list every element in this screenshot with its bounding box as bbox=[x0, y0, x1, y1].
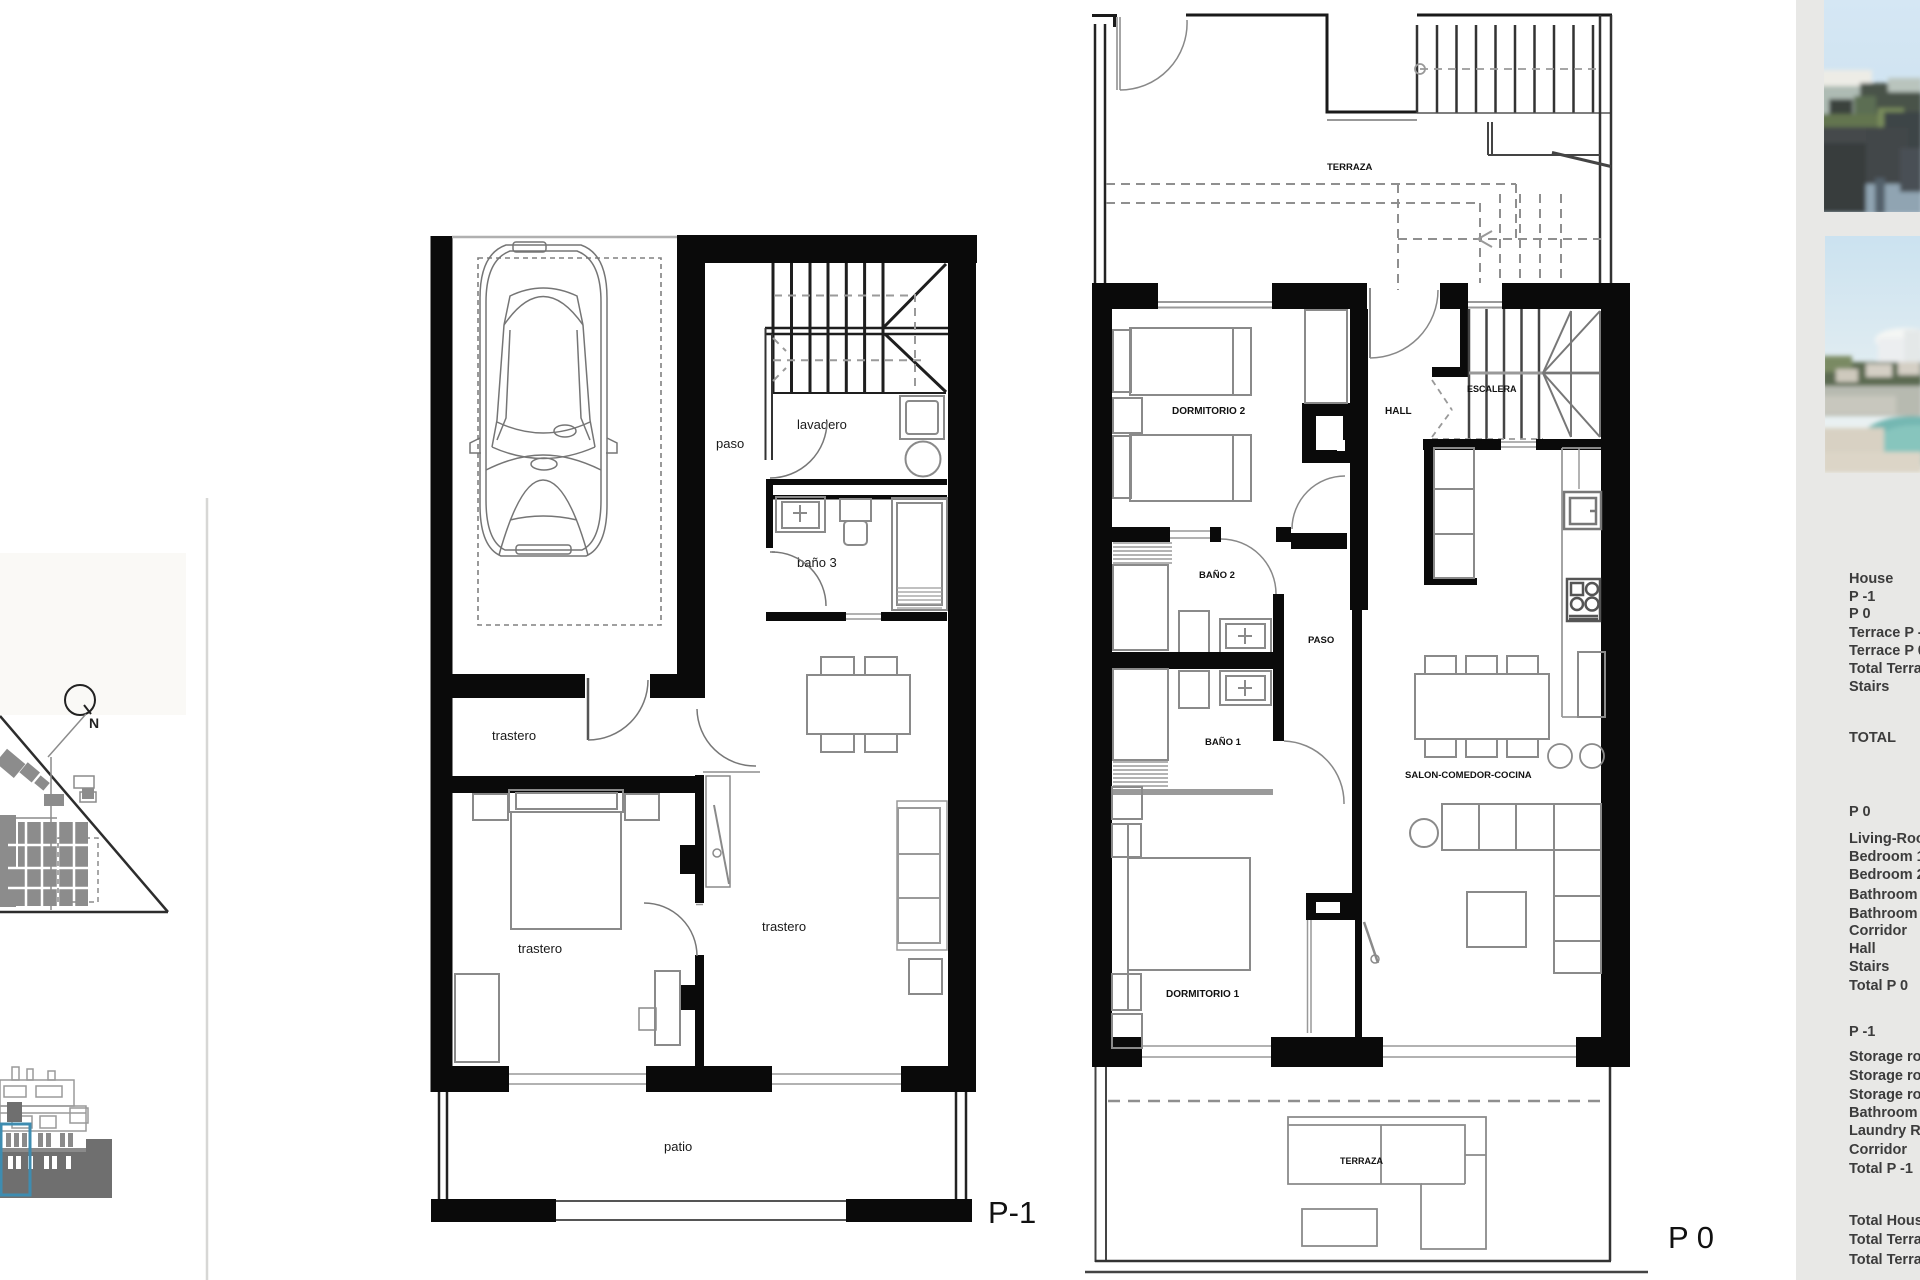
svg-text:Bathroom 1: Bathroom 1 bbox=[1849, 887, 1920, 903]
svg-text:Bedroom 2: Bedroom 2 bbox=[1849, 867, 1920, 883]
svg-text:Bathroom 3: Bathroom 3 bbox=[1849, 1105, 1920, 1121]
svg-text:DORMITORIO 1: DORMITORIO 1 bbox=[1166, 989, 1240, 1000]
svg-text:trastero: trastero bbox=[518, 941, 562, 956]
svg-text:House: House bbox=[1849, 571, 1893, 587]
svg-text:TOTAL: TOTAL bbox=[1849, 730, 1896, 746]
svg-text:SALON-COMEDOR-COCINA: SALON-COMEDOR-COCINA bbox=[1405, 770, 1532, 781]
svg-text:Total Terrace: Total Terrace bbox=[1849, 661, 1920, 677]
svg-text:BAÑO 2: BAÑO 2 bbox=[1199, 570, 1235, 581]
svg-text:Corridor: Corridor bbox=[1849, 923, 1907, 939]
svg-text:Terrace P -1: Terrace P -1 bbox=[1849, 625, 1920, 641]
svg-text:TERRAZA: TERRAZA bbox=[1340, 1156, 1383, 1166]
svg-text:lavadero: lavadero bbox=[797, 417, 847, 432]
svg-text:paso: paso bbox=[716, 436, 744, 451]
svg-text:ESCALERA: ESCALERA bbox=[1467, 384, 1517, 394]
svg-text:P-1: P-1 bbox=[988, 1195, 1036, 1230]
svg-text:Hall: Hall bbox=[1849, 941, 1876, 957]
svg-text:P 0: P 0 bbox=[1849, 606, 1871, 622]
svg-text:Total P -1: Total P -1 bbox=[1849, 1161, 1913, 1177]
svg-text:Storage room 3: Storage room 3 bbox=[1849, 1087, 1920, 1103]
svg-text:P -1: P -1 bbox=[1849, 589, 1875, 605]
svg-text:Storage room 2: Storage room 2 bbox=[1849, 1068, 1920, 1084]
svg-text:Corridor: Corridor bbox=[1849, 1142, 1907, 1158]
svg-text:P 0: P 0 bbox=[1668, 1220, 1714, 1255]
svg-text:Stairs: Stairs bbox=[1849, 679, 1889, 695]
svg-text:Stairs: Stairs bbox=[1849, 959, 1889, 975]
svg-text:N: N bbox=[89, 715, 99, 731]
svg-text:Living-Room-Kit: Living-Room-Kit bbox=[1849, 831, 1920, 847]
svg-text:P 0: P 0 bbox=[1849, 804, 1871, 820]
svg-text:P -1: P -1 bbox=[1849, 1024, 1875, 1040]
svg-text:PASO: PASO bbox=[1308, 635, 1334, 646]
svg-text:Total Terrace: Total Terrace bbox=[1849, 1232, 1920, 1248]
svg-text:Storage room 1: Storage room 1 bbox=[1849, 1049, 1920, 1065]
svg-text:trastero: trastero bbox=[492, 728, 536, 743]
svg-text:Laundry Room: Laundry Room bbox=[1849, 1123, 1920, 1139]
svg-text:HALL: HALL bbox=[1385, 406, 1412, 417]
svg-text:trastero: trastero bbox=[762, 919, 806, 934]
svg-text:DORMITORIO 2: DORMITORIO 2 bbox=[1172, 406, 1246, 417]
svg-text:patio: patio bbox=[664, 1139, 692, 1154]
svg-text:Total Terrace: Total Terrace bbox=[1849, 1252, 1920, 1268]
svg-text:Bathroom 2: Bathroom 2 bbox=[1849, 906, 1920, 922]
svg-text:Total P 0: Total P 0 bbox=[1849, 978, 1908, 994]
svg-text:Bedroom 1: Bedroom 1 bbox=[1849, 849, 1920, 865]
svg-text:Terrace P 0: Terrace P 0 bbox=[1849, 643, 1920, 659]
svg-text:Total House: Total House bbox=[1849, 1213, 1920, 1229]
svg-text:TERRAZA: TERRAZA bbox=[1327, 162, 1373, 173]
svg-text:BAÑO 1: BAÑO 1 bbox=[1205, 737, 1242, 748]
